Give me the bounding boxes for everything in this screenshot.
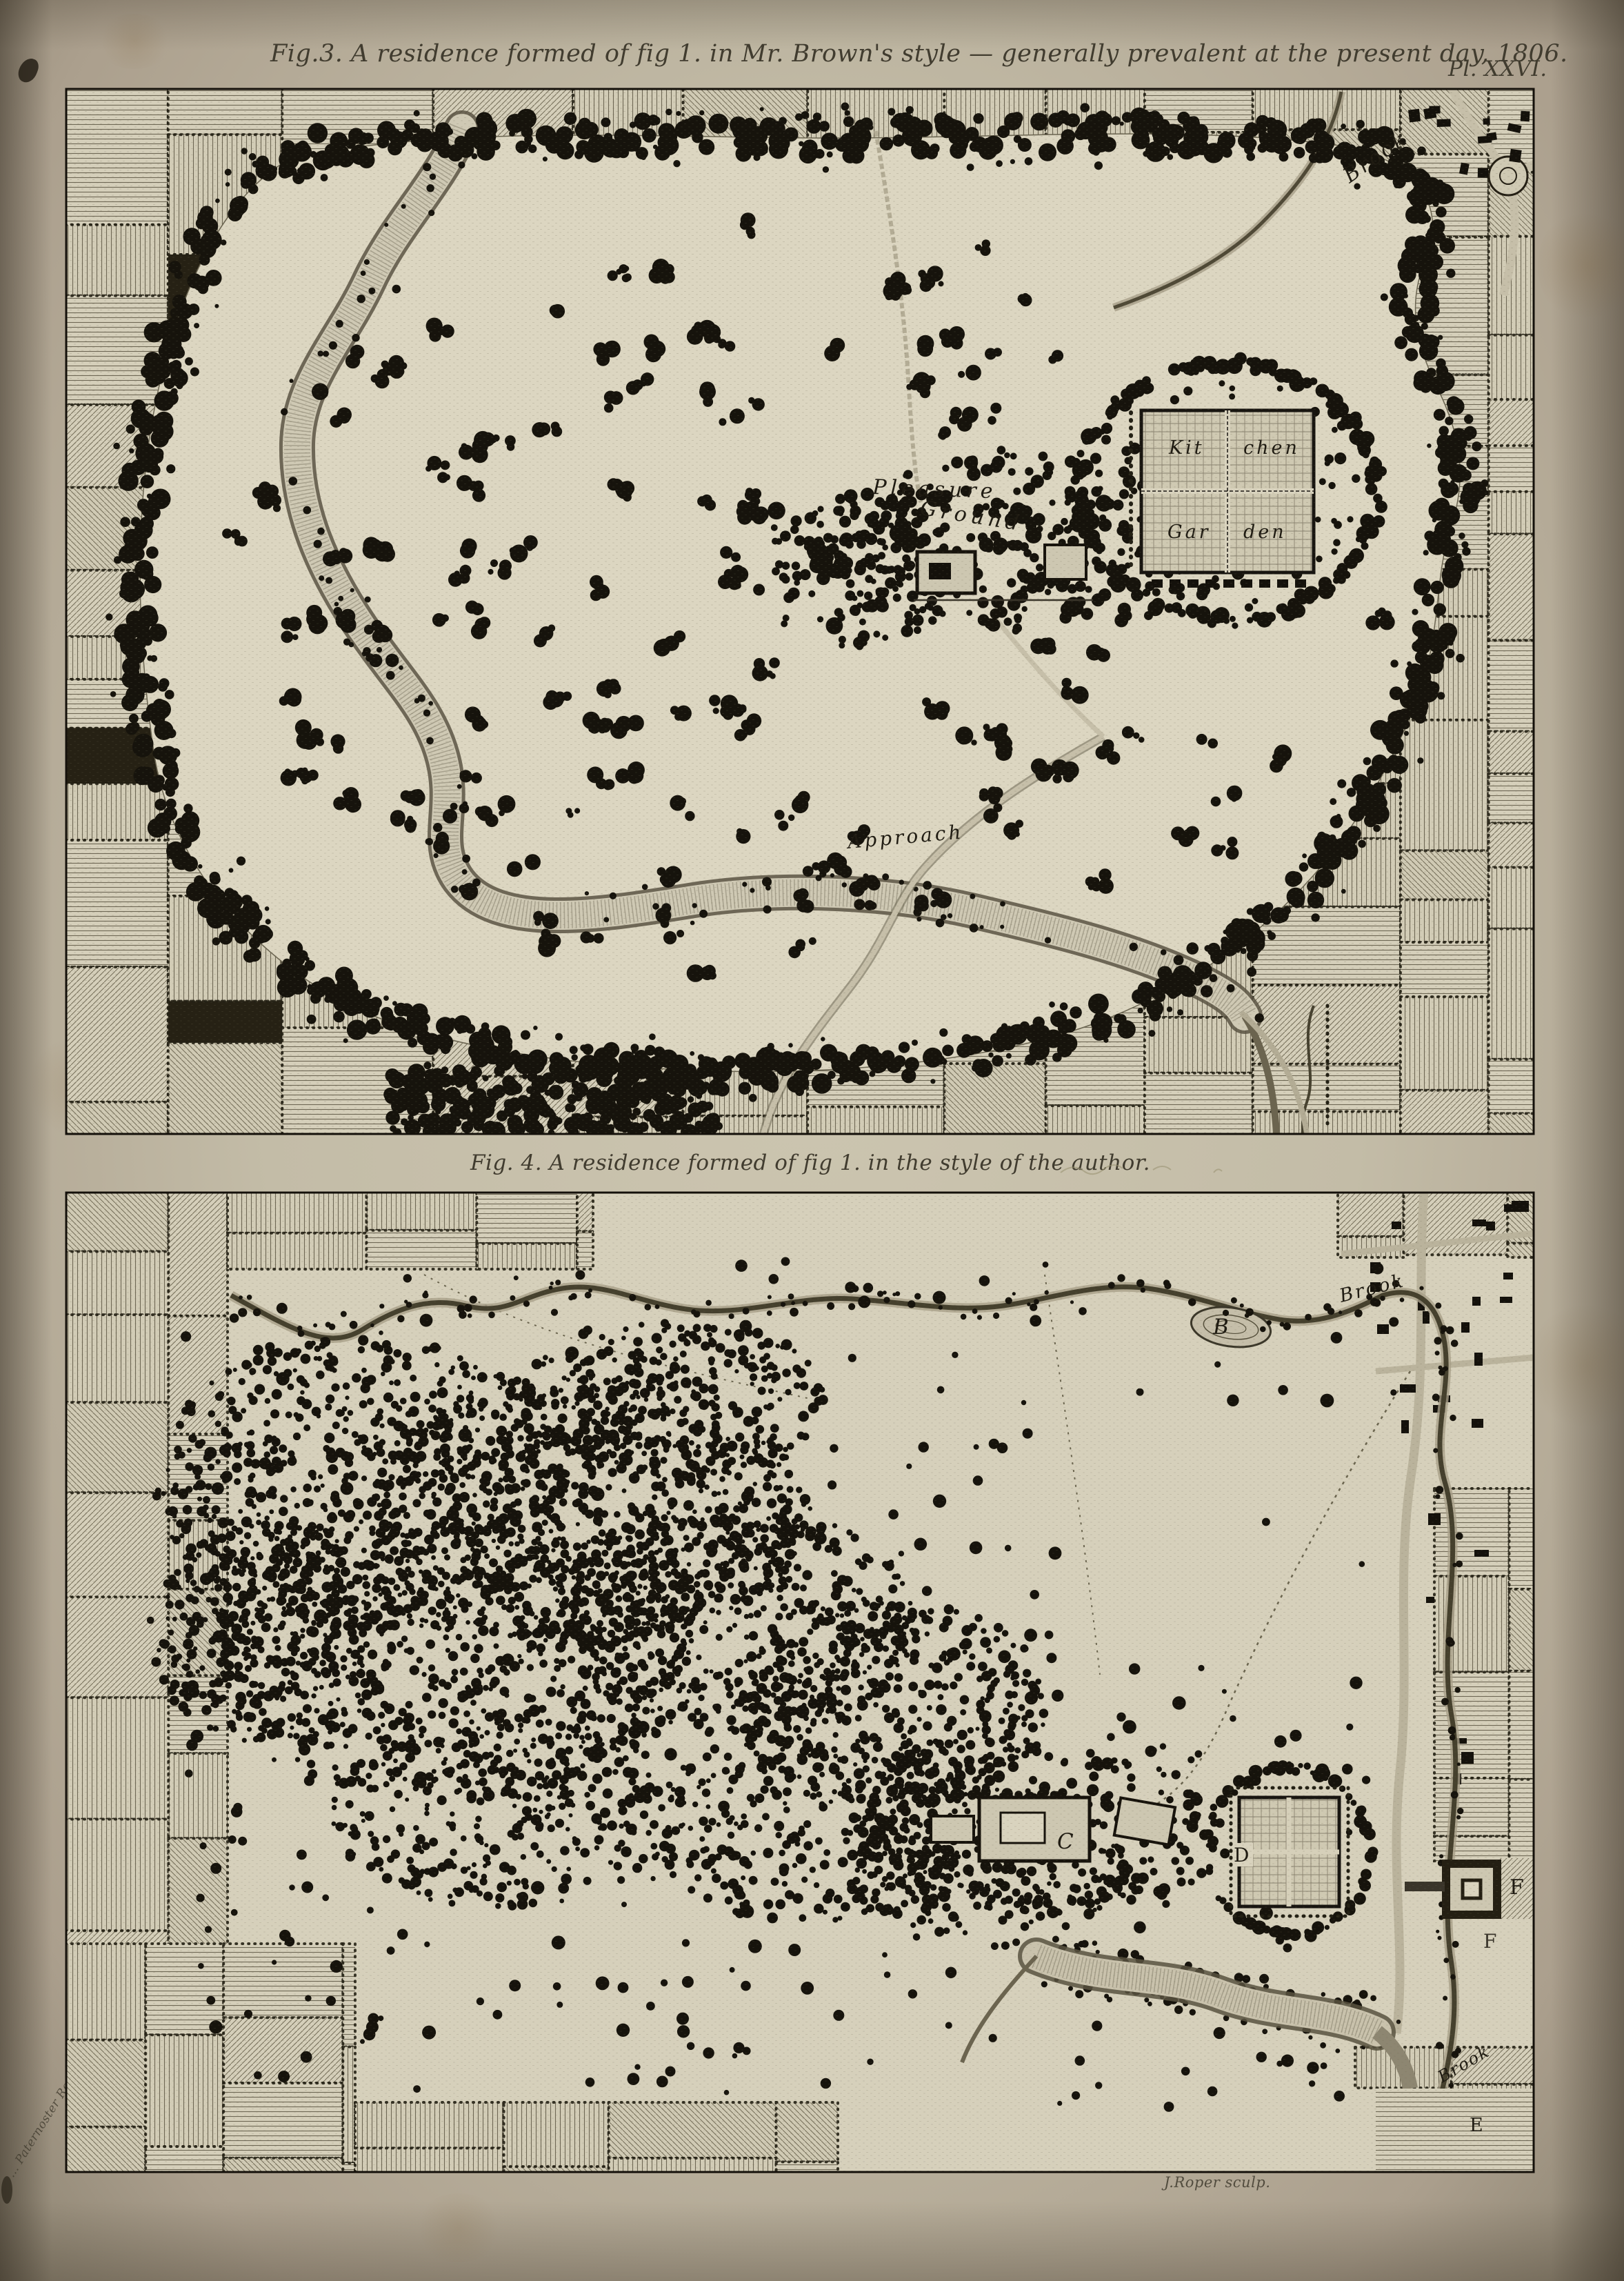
pencil-scribble — [1061, 1165, 1222, 1174]
engraved-plate: Brook Pleasure Ground Kit chen Gar den A… — [0, 0, 1624, 2281]
plate-page: Fig.3. A residence formed of fig 1. in M… — [0, 0, 1624, 2281]
fig3-map: Brook Pleasure Ground Kit chen Gar den A… — [66, 88, 1534, 1142]
fig4-map: Brook B C D F F Brook E — [66, 1192, 1534, 2181]
